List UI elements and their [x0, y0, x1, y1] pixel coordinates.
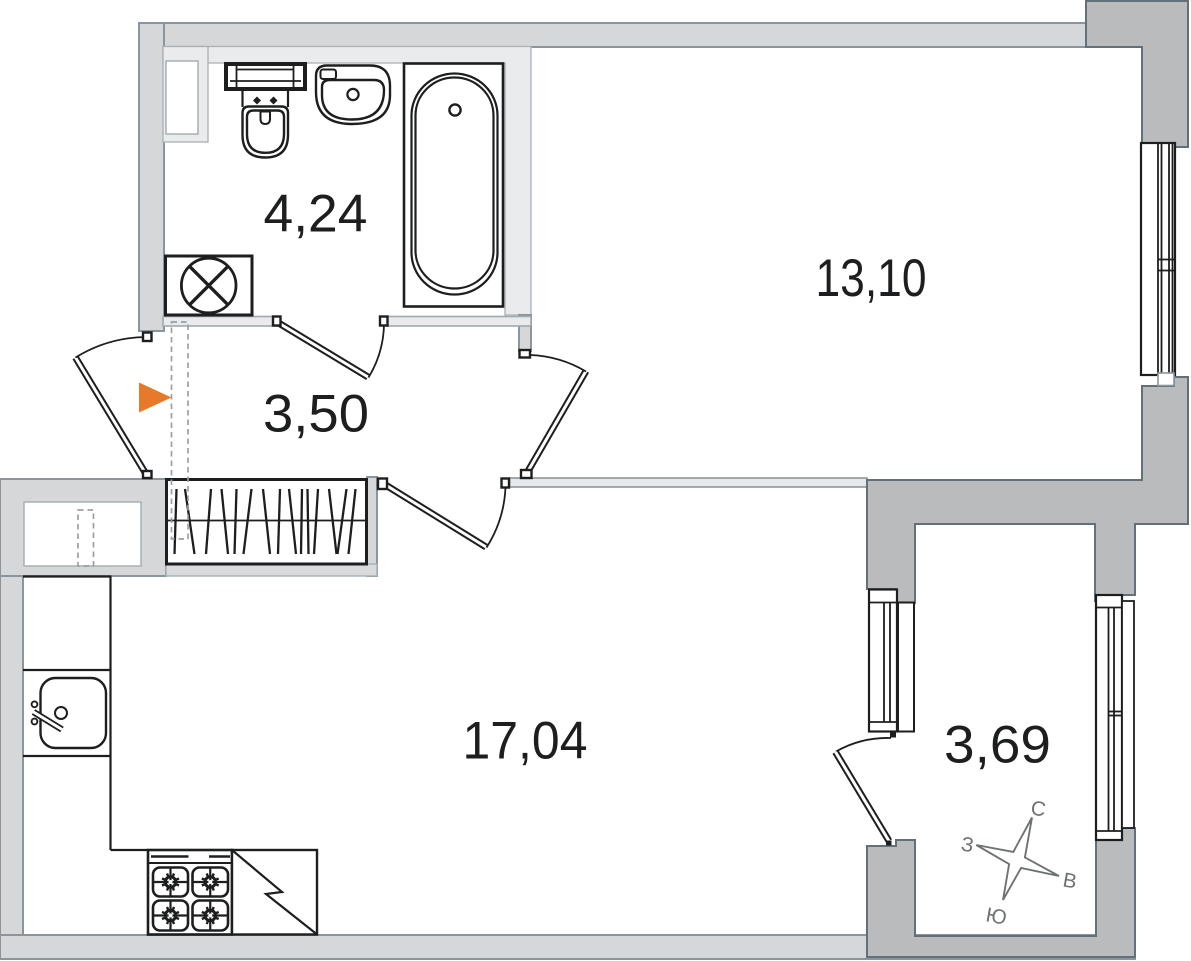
svg-text:3,50: 3,50 — [263, 385, 369, 444]
svg-text:13,10: 13,10 — [816, 249, 927, 308]
svg-text:17,04: 17,04 — [463, 712, 588, 771]
svg-text:3,69: 3,69 — [944, 716, 1051, 775]
svg-text:Ю: Ю — [984, 903, 1008, 929]
svg-text:4,24: 4,24 — [264, 185, 368, 244]
